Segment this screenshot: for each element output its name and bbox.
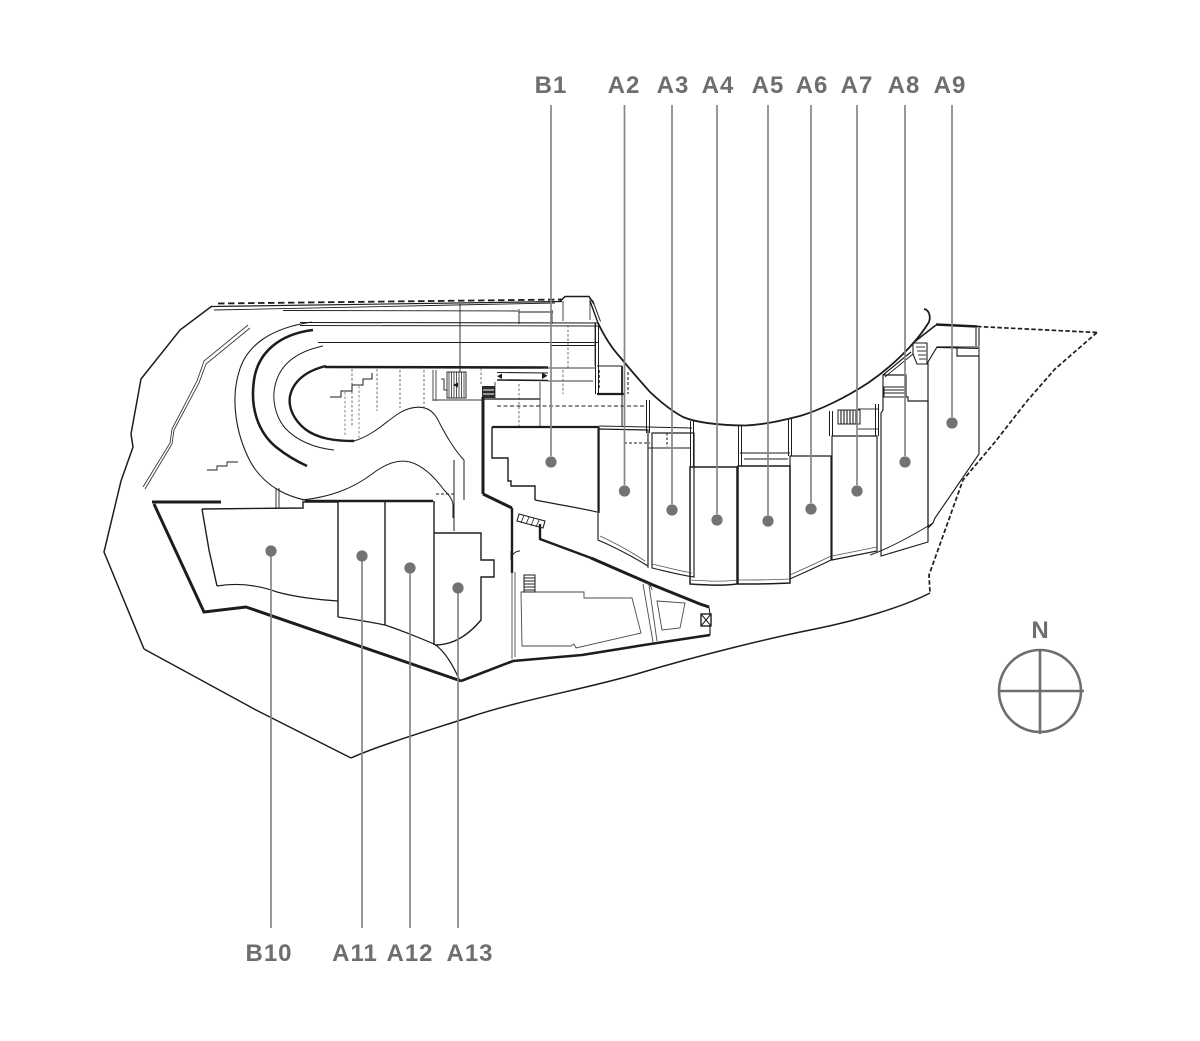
svg-text:N: N [1031,617,1048,644]
svg-text:A13: A13 [446,940,493,967]
svg-text:A7: A7 [841,72,874,99]
svg-text:A2: A2 [608,72,641,99]
svg-text:A8: A8 [888,72,921,99]
svg-text:A4: A4 [702,72,735,99]
svg-text:A5: A5 [752,72,785,99]
svg-text:A6: A6 [796,72,829,99]
svg-text:B10: B10 [245,940,292,967]
svg-text:A12: A12 [386,940,433,967]
svg-text:A11: A11 [332,940,378,967]
svg-text:A9: A9 [934,72,967,99]
svg-text:A3: A3 [657,72,690,99]
svg-text:B1: B1 [535,72,568,99]
